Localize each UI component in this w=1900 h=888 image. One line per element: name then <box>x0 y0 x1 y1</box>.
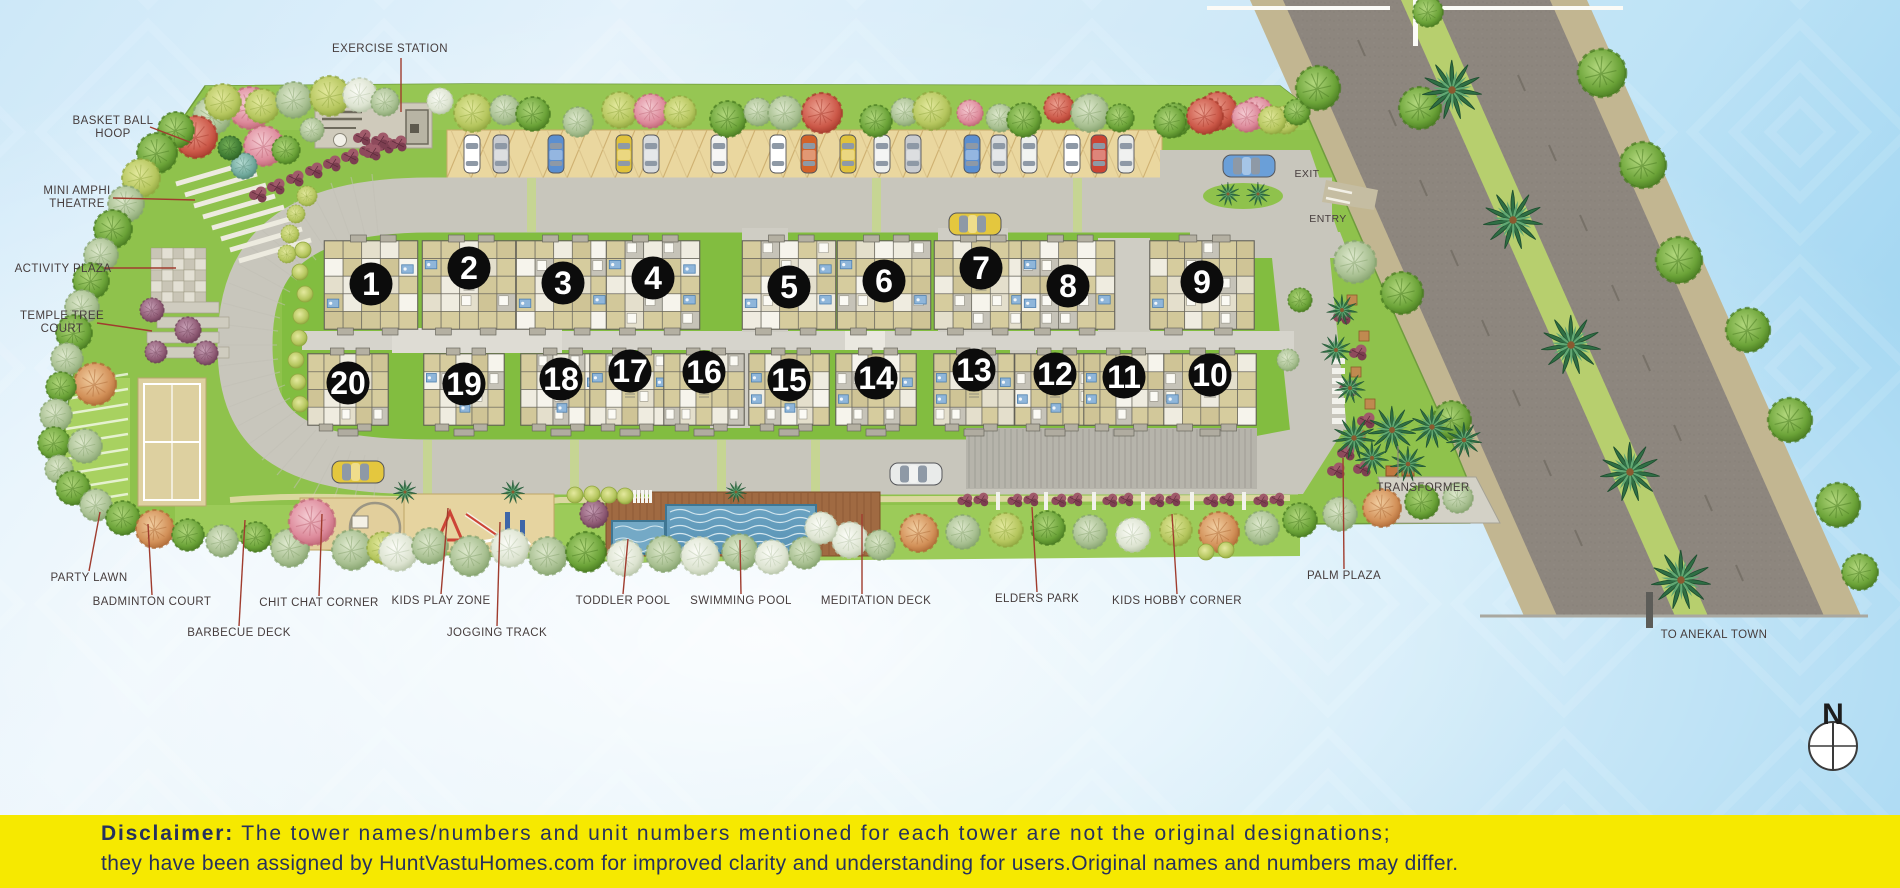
svg-text:TODDLER POOL: TODDLER POOL <box>576 595 671 607</box>
svg-text:6: 6 <box>875 263 893 299</box>
svg-text:12: 12 <box>1037 356 1073 392</box>
svg-text:JOGGING TRACK: JOGGING TRACK <box>447 627 547 639</box>
svg-text:BARBECUE DECK: BARBECUE DECK <box>187 627 291 639</box>
svg-text:TRANSFORMER: TRANSFORMER <box>1376 482 1469 494</box>
svg-text:14: 14 <box>858 360 894 396</box>
svg-text:EXERCISE STATION: EXERCISE STATION <box>332 43 448 55</box>
svg-text:9: 9 <box>1193 264 1211 300</box>
svg-text:20: 20 <box>330 365 366 401</box>
svg-text:17: 17 <box>612 353 648 389</box>
svg-text:2: 2 <box>460 250 478 286</box>
svg-text:PARTY LAWN: PARTY LAWN <box>50 572 127 584</box>
svg-text:15: 15 <box>771 362 807 398</box>
svg-text:ENTRY: ENTRY <box>1309 213 1346 225</box>
svg-text:THEATRE: THEATRE <box>49 198 105 210</box>
svg-text:8: 8 <box>1059 268 1077 304</box>
svg-text:MINI AMPHI: MINI AMPHI <box>43 185 110 197</box>
svg-text:16: 16 <box>686 354 722 390</box>
svg-text:ELDERS PARK: ELDERS PARK <box>995 593 1079 605</box>
svg-text:HOOP: HOOP <box>95 128 130 140</box>
svg-text:COURT: COURT <box>41 323 84 335</box>
svg-text:TO ANEKAL TOWN: TO ANEKAL TOWN <box>1661 629 1768 641</box>
svg-text:KIDS HOBBY CORNER: KIDS HOBBY CORNER <box>1112 595 1242 607</box>
svg-text:TEMPLE TREE: TEMPLE TREE <box>20 310 104 322</box>
svg-text:ACTIVITY PLAZA: ACTIVITY PLAZA <box>15 263 112 275</box>
svg-text:CHIT CHAT CORNER: CHIT CHAT CORNER <box>259 597 379 609</box>
svg-text:1: 1 <box>362 266 380 302</box>
svg-text:13: 13 <box>956 352 992 388</box>
svg-text:PALM PLAZA: PALM PLAZA <box>1307 570 1381 582</box>
svg-text:7: 7 <box>972 250 990 286</box>
svg-text:11: 11 <box>1107 359 1141 395</box>
svg-text:19: 19 <box>446 366 482 402</box>
svg-text:10: 10 <box>1192 357 1228 393</box>
svg-text:MEDITATION DECK: MEDITATION DECK <box>821 595 931 607</box>
svg-text:18: 18 <box>543 361 579 397</box>
svg-text:3: 3 <box>554 265 572 301</box>
svg-text:KIDS PLAY ZONE: KIDS PLAY ZONE <box>391 595 490 607</box>
svg-text:4: 4 <box>644 260 662 296</box>
svg-text:5: 5 <box>780 269 798 305</box>
svg-text:BADMINTON COURT: BADMINTON COURT <box>93 596 212 608</box>
svg-text:SWIMMING POOL: SWIMMING POOL <box>690 595 792 607</box>
svg-text:EXIT: EXIT <box>1295 168 1320 180</box>
svg-text:N: N <box>1822 698 1844 731</box>
svg-text:BASKET BALL: BASKET BALL <box>73 115 154 127</box>
